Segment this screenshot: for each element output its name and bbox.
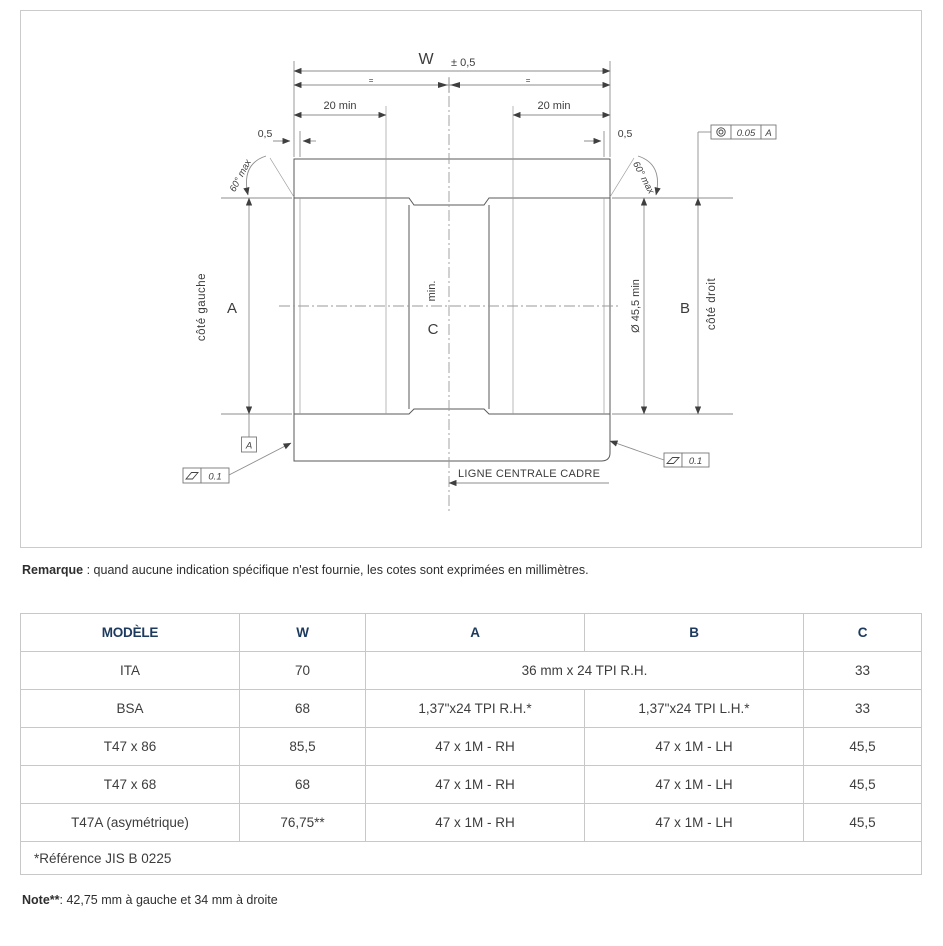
cell-ab-merged: 36 mm x 24 TPI R.H. (366, 652, 804, 690)
dimension-a: A côté gauche (196, 198, 249, 437)
technical-drawing-frame: W ± 0,5 = = 20 min 20 min (20, 10, 922, 548)
top-wall-hatched (294, 159, 610, 205)
cell-c: 33 (803, 690, 921, 728)
cell-a: 47 x 1M - RH (366, 766, 585, 804)
dim-05-left-label: 0,5 (258, 128, 273, 140)
concentricity-datum: A (764, 128, 771, 139)
table-row: T47 x 68 68 47 x 1M - RH 47 x 1M - LH 45… (21, 766, 922, 804)
flatness-left-value: 0.1 (208, 472, 221, 483)
table-row: T47A (asymétrique) 76,75** 47 x 1M - RH … (21, 804, 922, 842)
cell-model: T47 x 86 (21, 728, 240, 766)
dimension-20min-left: 20 min (294, 100, 386, 115)
label-b: B (680, 300, 690, 317)
spec-table: MODÈLE W A B C ITA 70 36 mm x 24 TPI R.H… (20, 613, 922, 875)
bottom-wall-hatched (294, 409, 610, 461)
cell-b: 47 x 1M - LH (585, 766, 804, 804)
cell-c: 45,5 (803, 728, 921, 766)
cell-a: 1,37"x24 TPI R.H.* (366, 690, 585, 728)
note-text: : 42,75 mm à gauche et 34 mm à droite (60, 893, 278, 907)
cell-b: 47 x 1M - LH (585, 804, 804, 842)
equal-mark-left: = (369, 76, 374, 85)
dimension-05-left: 0,5 (258, 128, 316, 141)
cell-c: 33 (803, 652, 921, 690)
label-a: A (227, 300, 237, 317)
flatness-right-value: 0.1 (689, 456, 702, 467)
frame-centerline-callout: LIGNE CENTRALE CADRE (449, 468, 609, 483)
note-label: Note** (22, 893, 60, 907)
cell-w: 68 (239, 766, 365, 804)
datum-a-flag: A (242, 437, 257, 452)
dim-bore-label: Ø 45,5 min (630, 279, 642, 333)
cell-model: T47A (asymétrique) (21, 804, 240, 842)
dimension-20min-right: 20 min (513, 100, 610, 115)
header-c: C (803, 614, 921, 652)
datum-a-label: A (245, 441, 252, 452)
centerlines (279, 77, 619, 511)
angle-left-label: 60° max (228, 157, 255, 194)
concentricity-tolerance-frame: 0.05 A (711, 125, 776, 139)
header-modele: MODÈLE (21, 614, 240, 652)
center-section-labels: C min. (426, 281, 439, 338)
header-b: B (585, 614, 804, 652)
concentricity-value: 0.05 (737, 128, 756, 139)
chamfer-callout-right: 60° max (610, 156, 658, 197)
cell-a: 47 x 1M - RH (366, 728, 585, 766)
remark-line: Remarque : quand aucune indication spéci… (22, 563, 589, 577)
centerline-label: LIGNE CENTRALE CADRE (458, 468, 600, 480)
table-row: ITA 70 36 mm x 24 TPI R.H. 33 (21, 652, 922, 690)
dim-20min-right-label: 20 min (537, 100, 570, 112)
table-footnote-row: *Référence JIS B 0225 (21, 842, 922, 875)
table-footnote: *Référence JIS B 0225 (21, 842, 922, 875)
side-left-label: côté gauche (196, 273, 208, 341)
flatness-frame-left: 0.1 (183, 443, 291, 483)
dimension-w: W ± 0,5 (294, 51, 610, 71)
note-line: Note**: 42,75 mm à gauche et 34 mm à dro… (22, 893, 278, 907)
dim-20min-left-label: 20 min (323, 100, 356, 112)
cell-w: 85,5 (239, 728, 365, 766)
cell-b: 47 x 1M - LH (585, 728, 804, 766)
cell-w: 76,75** (239, 804, 365, 842)
label-c: C (428, 321, 439, 338)
cell-w: 70 (239, 652, 365, 690)
dim-w-tolerance: ± 0,5 (451, 57, 475, 69)
cell-model: BSA (21, 690, 240, 728)
cell-a: 47 x 1M - RH (366, 804, 585, 842)
flatness-frame-right: 0.1 (610, 441, 709, 467)
dimension-05-right: 0,5 (584, 128, 632, 141)
body-edge-lines (294, 106, 610, 414)
dimension-equal-halves: = = (294, 76, 610, 92)
cell-c: 45,5 (803, 766, 921, 804)
cell-c: 45,5 (803, 804, 921, 842)
page: W ± 0,5 = = 20 min 20 min (0, 0, 943, 946)
table-row: BSA 68 1,37"x24 TPI R.H.* 1,37"x24 TPI L… (21, 690, 922, 728)
label-min: min. (426, 281, 438, 302)
cell-model: T47 x 68 (21, 766, 240, 804)
remark-label: Remarque (22, 563, 83, 577)
dimension-b: B côté droit (680, 132, 718, 414)
table-header-row: MODÈLE W A B C (21, 614, 922, 652)
remark-text: : quand aucune indication spécifique n'e… (83, 563, 588, 577)
cell-b: 1,37"x24 TPI L.H.* (585, 690, 804, 728)
chamfer-callout-left: 60° max (228, 156, 294, 197)
dimension-bore: Ø 45,5 min (630, 198, 644, 414)
side-right-label: côté droit (706, 278, 718, 331)
dim-w-label: W (418, 51, 434, 68)
cell-model: ITA (21, 652, 240, 690)
shell-cross-section-drawing: W ± 0,5 = = 20 min 20 min (21, 11, 923, 549)
header-a: A (366, 614, 585, 652)
table-row: T47 x 86 85,5 47 x 1M - RH 47 x 1M - LH … (21, 728, 922, 766)
cell-w: 68 (239, 690, 365, 728)
equal-mark-right: = (526, 76, 531, 85)
dim-05-right-label: 0,5 (618, 128, 633, 140)
header-w: W (239, 614, 365, 652)
extension-lines (221, 61, 733, 414)
